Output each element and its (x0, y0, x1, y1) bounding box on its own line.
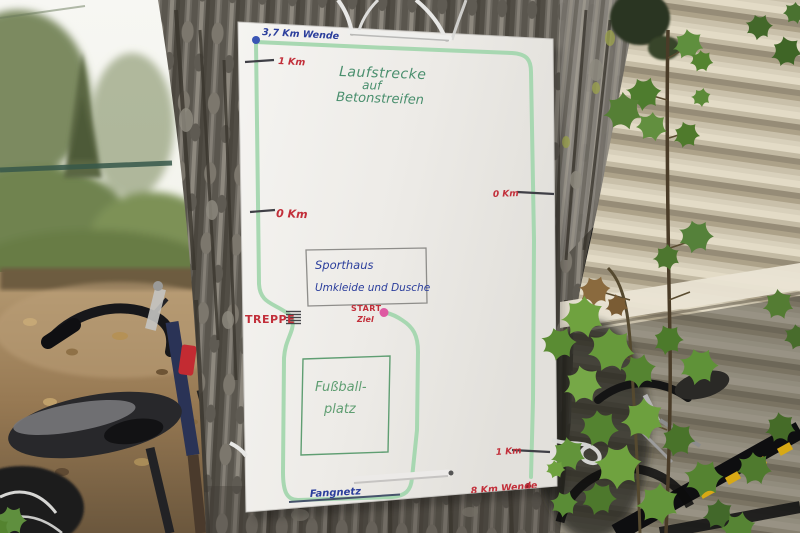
wende-dot-blue (252, 36, 260, 44)
label-platz: platz (323, 402, 357, 417)
label-ziel: Ziel (356, 315, 374, 324)
label-1km-right: 1 Km (496, 446, 522, 458)
map-title-line1: Laufstrecke (339, 64, 427, 83)
label-start: START (351, 304, 382, 313)
photo-of-route-map-sign: 3,7 Km Wende 1 Km Laufstrecke auf Betons… (0, 0, 800, 533)
label-0km-left: 0 Km (276, 207, 308, 221)
label-1km-left: 1 Km (278, 56, 306, 68)
label-0km-right: 0 Km (493, 189, 519, 200)
label-umkleide-dusche: Umkleide und Dusche (315, 282, 430, 294)
label-fussball: Fußball- (315, 380, 367, 395)
map-title-line3: Betonstreifen (336, 90, 424, 108)
label-sporthaus: Sporthaus (315, 258, 374, 272)
bell (153, 281, 163, 291)
label-treppe: TREPPE (245, 313, 295, 326)
cord-tip (449, 471, 454, 476)
